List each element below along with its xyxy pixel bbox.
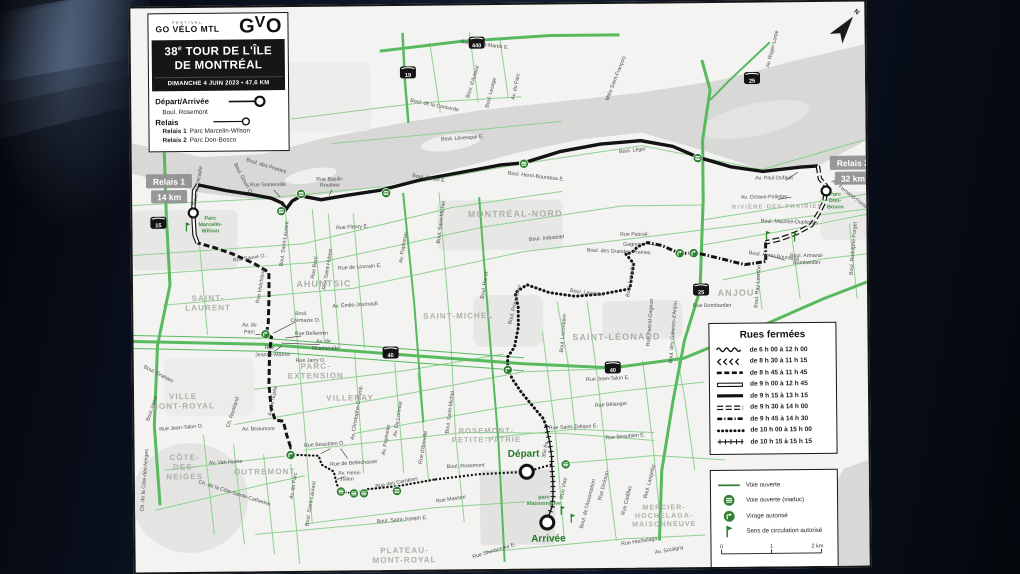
street-label: Rue d'Iberville	[418, 431, 429, 465]
virage-autorise-icon	[689, 248, 698, 257]
highway-shield: 19	[400, 66, 416, 79]
land-patch	[132, 210, 238, 271]
svg-text:32 km: 32 km	[841, 173, 866, 183]
district-label: ROSEMONT-PETITE-PATRIE	[452, 426, 522, 445]
street-label: Av. Roger-Lortie	[765, 30, 780, 68]
street-label: Jeanne-Mance	[255, 352, 290, 358]
svg-text:15: 15	[155, 223, 161, 229]
street-label: Boul. Armand-	[790, 253, 824, 259]
sens-icon	[717, 525, 741, 538]
closure-style-icon	[715, 345, 745, 355]
background-streak	[0, 0, 132, 82]
virage-autorise-icon	[675, 249, 684, 258]
gvo-logo-mark: GVO	[239, 17, 281, 35]
route-endpoint-label: Départ	[508, 449, 540, 460]
svg-text:Relais 2: Relais 2	[837, 158, 869, 168]
legend-item: Virage autorisé	[717, 508, 831, 522]
street-label: Av. Émile-Journault	[332, 300, 378, 310]
closure-schedule-row: de 10 h 15 à 15 h 15	[715, 436, 831, 447]
viaduc-open-icon	[693, 153, 702, 162]
closure-time-range: de 9 h 00 à 12 h 45	[750, 380, 808, 388]
street-label: Rue Hochelaga	[621, 536, 658, 547]
checkpoint-marker	[541, 516, 554, 529]
street-label: Av. Van Horne	[209, 459, 243, 466]
closure-style-icon	[715, 402, 745, 412]
street-label: Boul. de l'Assomption	[579, 479, 597, 530]
district-label: SAINT-MICHEL	[423, 311, 493, 321]
scale-bar-svg: 0 1 2 km	[717, 542, 829, 559]
svg-text:0: 0	[720, 544, 723, 550]
tour-map-panel: N Boul. Gouin O.Boul. des PrairiesRue So…	[128, 0, 871, 574]
closure-schedule-row: de 8 h 30 à 11 h 15	[715, 355, 831, 366]
svg-text:440: 440	[472, 43, 481, 49]
street-label: Boul. Rosemont	[447, 462, 485, 470]
svg-text:1: 1	[770, 544, 773, 550]
street-label: Boul. Pie-IX	[480, 270, 491, 299]
closure-style-icon	[715, 391, 745, 401]
street-label: Boul. de la Concorde	[410, 98, 460, 114]
legend-item-label: Sens de circulation autorisé	[746, 527, 822, 535]
district-label: VILLERAY	[326, 393, 374, 402]
street-label: Boul. Léger	[619, 146, 647, 155]
district-label: ANJOU	[718, 288, 755, 298]
highway-shield: 25	[693, 283, 709, 296]
viaduc-open-icon	[349, 489, 358, 498]
street-label: Rue Viau	[559, 477, 568, 499]
north-label: N	[852, 8, 860, 17]
street-label: 35e Av.	[541, 440, 550, 458]
highway-shield: 440	[469, 37, 485, 50]
street-label: Bombardier	[793, 260, 821, 266]
closure-style-icon	[715, 437, 745, 447]
virage-autorise-icon	[261, 330, 270, 339]
highway-shield: 25	[744, 72, 760, 85]
closure-time-range: de 8 h 30 à 11 h 15	[750, 357, 808, 365]
street-label: Parc	[244, 329, 255, 335]
closure-style-icon	[715, 368, 745, 378]
depart-arrivee-label: Départ/Arrivée	[155, 97, 209, 107]
street-label: Rue Beaubien E.	[605, 432, 645, 441]
checkpoint-marker	[189, 208, 198, 217]
closure-schedule-row: de 6 h 00 à 12 h 00	[715, 344, 831, 355]
street-label: Av. De Lorimier	[392, 400, 404, 437]
closure-schedule-row: de 9 h 45 à 14 h 30	[715, 413, 831, 424]
go-velo-mtl-wordmark: GO VÉLO MTL	[155, 24, 219, 33]
closure-time-range: de 9 h 15 à 13 h 15	[750, 392, 808, 400]
header-legend: Départ/Arrivée Boul. Rosemont Relais Rel…	[149, 92, 289, 151]
street-label: Boul. d'Auteuil	[465, 65, 481, 99]
closure-time-range: de 10 h 15 à 15 h 15	[750, 438, 812, 446]
closed-streets-card: Rues fermées de 6 h 00 à 12 h 00de 8 h 3…	[708, 322, 837, 455]
street-label: Boul. Langelier	[625, 261, 637, 297]
street-label: Rue Somerville	[250, 182, 286, 188]
event-title-band: 38e TOUR DE L'ÎLE DE MONTRÉAL DIMANCHE 4…	[152, 39, 285, 91]
news-frame-background: N Boul. Gouin O.Boul. des PrairiesRue So…	[0, 0, 1020, 574]
svg-text:Relais 1: Relais 1	[153, 177, 185, 187]
festival-logo: FESTIVAL GO VÉLO MTL GVO	[148, 13, 287, 38]
closure-schedule-row: de 9 h 00 à 12 h 45	[715, 378, 831, 389]
district-label: SAINT-LAURENT	[185, 294, 231, 313]
legend-item-label: Voie ouverte (viaduc)	[746, 496, 804, 504]
event-title-line1: 38e TOUR DE L'ÎLE	[154, 44, 283, 60]
street-label: Av. du Parc	[510, 73, 521, 101]
district-label: PARC-EXTENSION	[288, 362, 344, 381]
street-label: Av. du	[242, 322, 257, 328]
street-label: Av. de	[316, 339, 331, 345]
viaduc-icon	[717, 494, 741, 507]
closure-schedule-row: de 10 h 00 à 15 h 00	[715, 424, 831, 435]
street-label: Rue Bombardier	[693, 303, 732, 309]
viaduc-open-icon	[359, 489, 368, 498]
street-label: Julien	[340, 476, 354, 482]
highway-shield: 15	[150, 217, 166, 230]
street-label: Av. Paul-Dufault	[755, 175, 793, 181]
street-label: Rue Jean-Talon E.	[586, 375, 630, 383]
background-streak	[0, 0, 132, 104]
relais2-entry: Relais 2Parc Don-Bosco	[156, 135, 283, 145]
virage-autorise-icon	[286, 450, 295, 459]
street-label: Av. Papineau	[398, 232, 409, 264]
street-label: Boul.	[295, 311, 307, 317]
closure-schedule-row: de 9 h 15 à 13 h 15	[715, 390, 831, 401]
checkpoint-marker	[822, 186, 831, 195]
street-label: Rue Beaubien O.	[304, 440, 345, 449]
depart-marker-icon	[213, 95, 282, 108]
event-title-line2: DE MONTRÉAL	[154, 58, 283, 74]
highway-shield: 40	[383, 346, 399, 359]
relais-marker-icon	[182, 116, 282, 127]
street-label: Rue Bellarmin	[295, 331, 328, 337]
viaduc-open-icon	[392, 486, 401, 495]
street-label: Rue Hutchison	[255, 268, 267, 303]
district-label: MONTRÉAL-NORD	[468, 208, 563, 219]
street-label: Rue Fleury E.	[336, 223, 369, 231]
street-label: Rue Bélanger	[595, 401, 628, 409]
district-label: OUTREMONT	[234, 467, 296, 477]
street-label: Boul. Henri-Bourassa E.	[507, 170, 564, 182]
checkpoint-marker	[520, 465, 533, 478]
street-label: Boul. Lesage	[484, 77, 498, 108]
closure-style-icon	[715, 414, 745, 424]
north-arrow-icon: N	[830, 5, 865, 44]
sens-circulation-icon	[766, 231, 770, 240]
street-label: Rue Cadillac	[620, 485, 633, 516]
virage-autorise-icon	[503, 365, 512, 374]
event-date-distance: DIMANCHE 4 JUIN 2023 • 47,6 KM	[154, 76, 283, 87]
legend-item: Sens de circulation autorisé	[717, 524, 831, 538]
viaduc-open-icon	[336, 487, 345, 496]
svg-text:2 km: 2 km	[812, 543, 824, 549]
street-label: Rue de Bellechasse	[330, 459, 377, 468]
district-label: MERCIER-HOCHELAGA-MAISONNEUVE	[632, 504, 696, 528]
street-label: Gagnon	[623, 242, 642, 248]
closure-time-range: de 10 h 00 à 15 h 00	[750, 426, 812, 434]
street-label: Rue Dickson	[597, 470, 610, 501]
viaduc-open-icon	[519, 159, 528, 168]
street-label: Boul. Langelier	[643, 463, 658, 499]
line-icon	[717, 478, 741, 491]
viaduc-open-icon	[381, 188, 390, 197]
sens-circulation-icon	[571, 514, 575, 523]
closure-style-icon	[715, 379, 745, 389]
street-label: Boul. Saint-Joseph E.	[377, 515, 428, 525]
land-patch	[820, 191, 870, 239]
street-label: Crémazie O.	[290, 318, 320, 324]
street-label: Routhier	[320, 183, 340, 189]
street-label: Rue Pascal-	[620, 232, 649, 238]
virage-icon	[717, 509, 741, 522]
highway-shield: 40	[605, 361, 621, 374]
street-label: l'Esplanade	[312, 346, 339, 352]
svg-text:19: 19	[405, 73, 411, 79]
street-label: Av. Octave-Pelletier	[741, 194, 788, 200]
legend-item: Voie ouverte	[717, 477, 831, 491]
street-label: Boul. des Grandes-Prairies	[587, 248, 651, 257]
svg-text:40: 40	[388, 353, 394, 359]
closure-time-range: de 8 h 45 à 11 h 45	[750, 369, 808, 377]
relais-label: Relais	[155, 118, 178, 127]
legend-item: Voie ouverte (viaduc)	[717, 493, 831, 507]
closure-style-icon	[715, 356, 745, 366]
svg-text:25: 25	[698, 290, 704, 296]
event-header-card: FESTIVAL GO VÉLO MTL GVO 38e TOUR DE L'Î…	[147, 12, 289, 152]
legend-item-label: Voie ouverte	[746, 481, 780, 488]
street-label: Av. Souligny	[655, 545, 685, 556]
svg-text:40: 40	[610, 368, 616, 374]
route-endpoint-label: Arrivée	[531, 533, 566, 544]
relais-distance-badge: Relais 1 14 km	[146, 174, 192, 203]
district-label: PLATEAU-MONT-ROYAL	[372, 546, 436, 565]
street-label: Rue Masson	[436, 494, 466, 504]
closure-schedule-row: de 9 h 30 à 14 h 00	[715, 401, 831, 412]
viaduc-open-icon	[296, 189, 305, 198]
street-label: Boul. Maurice-Duplessis	[761, 218, 819, 225]
street-label: Boul. Saint-Laurent	[304, 480, 317, 526]
closure-style-icon	[715, 425, 745, 435]
sources-note: Sources 2023 : Adresses Québec, Ville Qu…	[718, 567, 832, 574]
street-label: Av. Beaumont	[242, 426, 275, 432]
sens-circulation-icon	[561, 506, 565, 515]
district-label: RIVIÈRE-DES-PRAIRIES	[732, 202, 823, 211]
map-legend-card: Voie ouverteVoie ouverte (viaduc)Virage …	[710, 469, 839, 574]
viaduc-open-icon	[561, 460, 570, 469]
relais-distance-badge: Relais 2 32 km	[830, 155, 872, 184]
scale-bar: 0 1 2 km	[717, 542, 831, 564]
street-label: Rue Jean-Talon O.	[159, 423, 204, 432]
legend-item-label: Virage autorisé	[746, 512, 788, 519]
closure-time-range: de 9 h 45 à 14 h 30	[750, 415, 808, 423]
street-label: Rue	[265, 345, 275, 351]
district-label: AHUNTSIC	[296, 278, 351, 289]
district-label: SAINT-LÉONARD	[572, 331, 660, 342]
svg-text:14 km: 14 km	[157, 192, 182, 202]
street-label: Rue de Louvain E.	[338, 263, 382, 272]
svg-text:25: 25	[749, 79, 755, 85]
closure-schedule-row: de 8 h 45 à 11 h 45	[715, 367, 831, 378]
closure-time-range: de 9 h 30 à 14 h 00	[750, 403, 808, 411]
closure-time-range: de 6 h 00 à 12 h 00	[750, 346, 808, 354]
viaduc-open-icon	[277, 206, 286, 215]
closed-streets-title: Rues fermées	[714, 329, 830, 341]
